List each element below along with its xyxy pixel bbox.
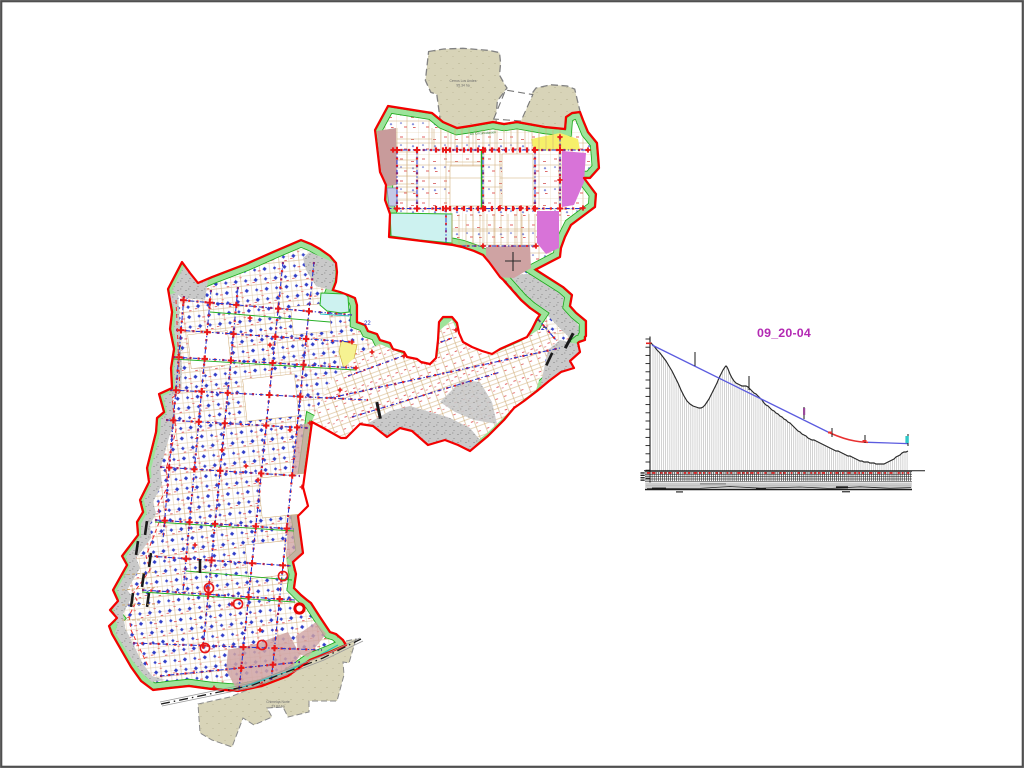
svg-text:Cerros Los Andes: Cerros Los Andes (450, 79, 477, 83)
svg-text:Chimelqa Norte: Chimelqa Norte (266, 700, 290, 704)
svg-text:22: 22 (364, 321, 371, 327)
svg-text:09_20-04: 09_20-04 (757, 326, 811, 340)
svg-text:95.34 ha: 95.34 ha (456, 84, 469, 88)
svg-text:23.67 ha: 23.67 ha (271, 705, 284, 709)
